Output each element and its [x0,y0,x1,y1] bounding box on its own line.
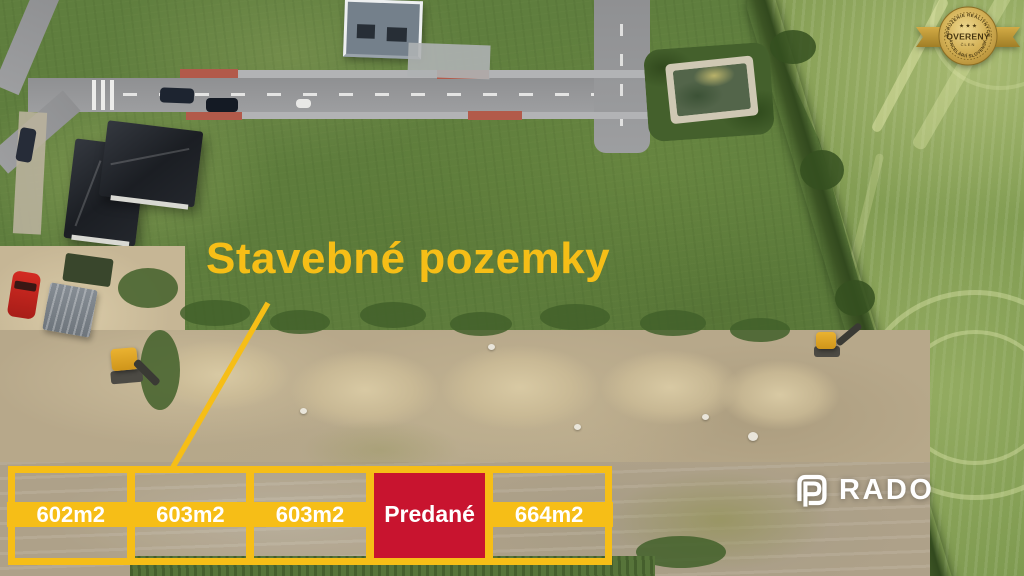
soil-mound [720,360,840,430]
road-centerline [620,6,623,126]
utility-marker [702,414,709,420]
badge-title: OVERENÝ [946,31,989,42]
hedge-bush [770,30,816,64]
bush-row [180,300,250,326]
plot-cell-602m2: 602m2 [15,473,127,558]
excavator-right [812,328,854,368]
red-paver-segment [180,69,238,78]
plot-cell-664m2: 664m2 [485,473,605,558]
hedge-bush [800,150,844,190]
crosswalk-zebra [92,80,118,110]
plot-cell-sold: Predané [366,473,486,558]
plot-label: 664m2 [493,502,605,527]
plot-label: 603m2 [135,502,247,527]
sidewalk-south [235,112,655,119]
manhole-cover [748,432,758,441]
bush-row [450,312,512,336]
utility-marker [300,408,307,414]
bush-cluster [118,268,178,308]
utility-marker [488,344,495,350]
window-opening [357,24,375,39]
rado-logo-text: RADO [839,474,934,507]
house-dark-roof [63,117,208,260]
road-centerline [123,93,641,96]
hedge-bush [835,280,875,316]
bush-row [540,304,610,330]
parked-car-white [296,99,311,108]
parked-car-dark [160,87,195,103]
plot-sold-label: Predané [374,502,486,527]
window-opening [387,27,407,42]
plot-cell-603m2-a: 603m2 [127,473,247,558]
plot-cell-603m2-b: 603m2 [246,473,366,558]
headline-title: Stavebné pozemky [206,234,610,284]
pond-gravel-border [665,55,759,124]
excavator-left [102,340,152,396]
red-paver-segment [468,111,522,120]
bush-row [730,318,790,342]
plots-grid: 602m2 603m2 603m2 Predané 664m2 [8,466,612,565]
plot-label: 602m2 [15,502,127,527]
soil-mound [290,350,440,430]
bush-row [270,310,330,334]
road-main-street [28,78,653,112]
bush-row [640,310,706,336]
rado-logo: RADO [792,472,934,508]
verified-badge: ZDRUŽENIE REALITNÝCH KANCELÁRIÍ SLOVENSK… [916,3,1020,67]
excavator-body [816,332,836,349]
real-estate-promo-image: Stavebné pozemky 602m2 603m2 603m2 Preda… [0,0,1024,576]
garden-with-pond [643,42,775,143]
badge-subtitle: ČLEN [961,42,976,47]
soil-mound [440,345,600,430]
red-paver-segment [186,112,242,120]
gray-container [42,282,98,338]
bush-row [360,302,426,328]
paved-apron [407,43,490,80]
parked-car-dark [206,98,238,112]
pond-water [673,63,751,116]
rado-logo-icon [792,472,830,508]
windshield [14,280,37,291]
soil-mound [600,350,740,425]
excavator-body [110,347,138,371]
utility-marker [574,424,581,430]
badge-stars-icon: ★ ★ ★ [959,23,977,30]
plot-label: 603m2 [254,502,366,527]
